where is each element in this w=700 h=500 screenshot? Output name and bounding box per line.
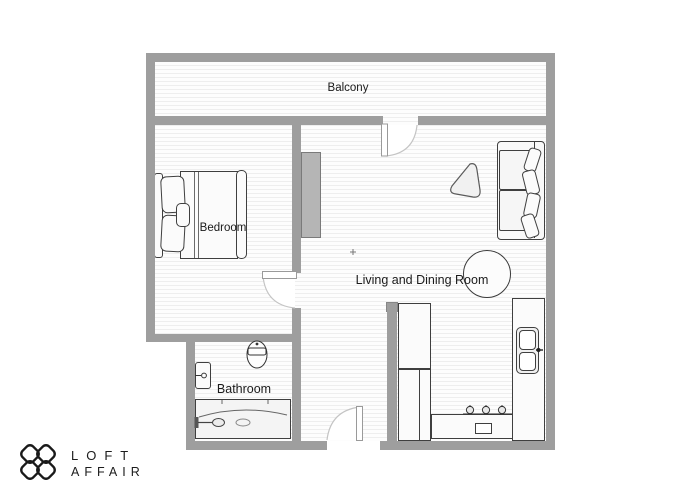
wall-exterior-bottom xyxy=(186,441,327,450)
brand-name-line1: LOFT xyxy=(71,448,145,464)
kitchen-sink-basin xyxy=(519,330,536,350)
bathtub xyxy=(195,399,291,439)
kitchen-counter-left-lower xyxy=(398,369,431,441)
room-label-bathroom: Bathroom xyxy=(217,382,271,396)
bed-pillow-small xyxy=(176,203,190,227)
wash-basin xyxy=(195,362,211,389)
oven-handle xyxy=(475,423,492,434)
room-label-living-dining: Living and Dining Room xyxy=(356,273,489,287)
wall-bedroom-living xyxy=(292,308,301,450)
bed-footboard xyxy=(236,170,247,259)
wall-bedroom-bathroom xyxy=(146,334,301,342)
bed-blanket-fold xyxy=(198,172,199,258)
tv-cabinet xyxy=(301,152,321,238)
bed-blanket-fold xyxy=(194,172,195,258)
wall-exterior-left xyxy=(146,53,155,342)
kitchen-sink-basin xyxy=(519,352,536,371)
wall-bathroom-left xyxy=(186,342,195,450)
wall-exterior-right xyxy=(546,53,555,450)
exterior-notch xyxy=(138,342,186,460)
wall-exterior-bottom xyxy=(380,441,555,450)
wall-balcony xyxy=(146,116,383,125)
room-label-bedroom: Bedroom xyxy=(200,222,247,234)
kitchen-counter-left-upper xyxy=(398,303,431,369)
kitchen-counter-divider xyxy=(419,370,420,440)
brand-name-line2: AFFAIR xyxy=(71,464,145,480)
floor-plan: Balcony Bedroom Living and Dining Room B… xyxy=(0,0,700,500)
wall-bedroom-living xyxy=(292,125,301,273)
brand-logo-text: LOFT AFFAIR xyxy=(71,448,145,480)
brand-logo-icon xyxy=(19,443,56,480)
wall-kitchen-stub xyxy=(387,303,397,441)
wall-balcony xyxy=(418,116,555,125)
wall-exterior-top xyxy=(146,53,555,62)
room-label-balcony: Balcony xyxy=(328,82,369,94)
